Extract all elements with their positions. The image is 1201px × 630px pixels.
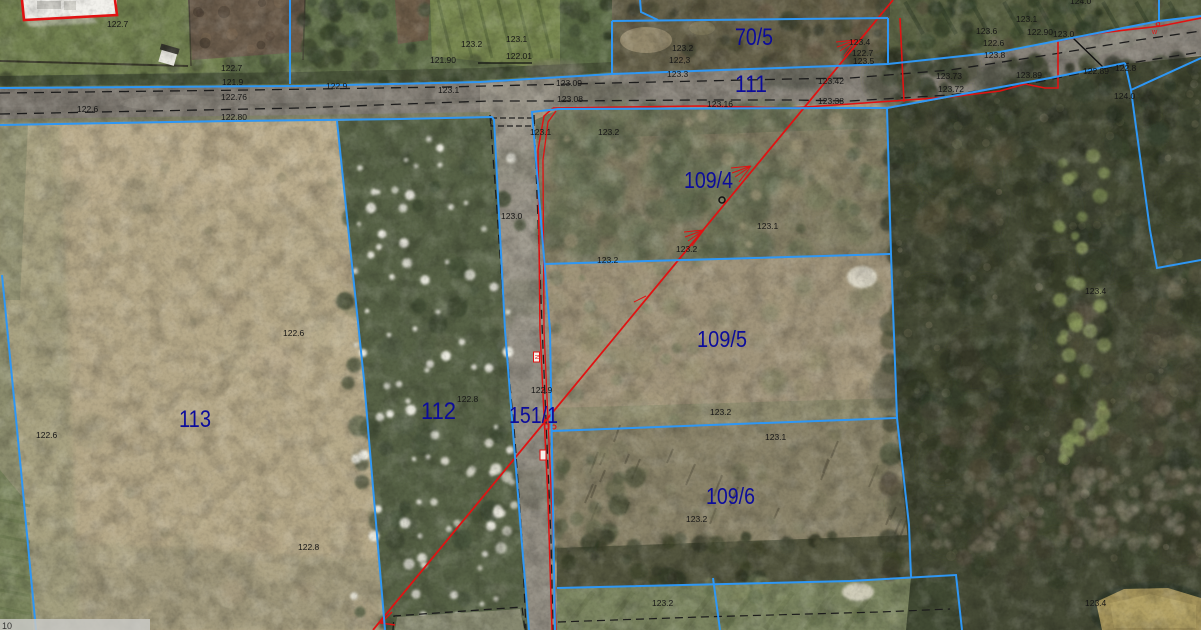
svg-text:123.1: 123.1 xyxy=(757,221,779,231)
svg-text:10: 10 xyxy=(2,621,12,630)
svg-text:123.2: 123.2 xyxy=(461,39,483,49)
svg-text:123.1: 123.1 xyxy=(530,127,552,137)
svg-text:123.4: 123.4 xyxy=(1085,598,1107,608)
svg-text:123.09: 123.09 xyxy=(556,78,582,88)
svg-text:122.6: 122.6 xyxy=(983,38,1005,48)
svg-text:122.9: 122.9 xyxy=(326,81,348,91)
svg-text:123.2: 123.2 xyxy=(598,127,620,137)
svg-text:121.90: 121.90 xyxy=(430,55,456,65)
svg-text:124.0: 124.0 xyxy=(1070,0,1092,6)
svg-text:123.2: 123.2 xyxy=(710,407,732,417)
svg-text:123.6: 123.6 xyxy=(976,26,998,36)
svg-text:123.2: 123.2 xyxy=(686,514,708,524)
svg-text:123.08: 123.08 xyxy=(557,94,583,104)
svg-text:122.6: 122.6 xyxy=(283,328,305,338)
svg-text:109/4: 109/4 xyxy=(684,167,733,193)
svg-text:123.1: 123.1 xyxy=(765,432,787,442)
svg-text:123.8: 123.8 xyxy=(984,50,1006,60)
svg-text:123.0: 123.0 xyxy=(1053,29,1075,39)
svg-text:122.8: 122.8 xyxy=(1115,63,1137,73)
svg-text:123.5: 123.5 xyxy=(853,56,875,66)
svg-text:123.1: 123.1 xyxy=(506,34,528,44)
svg-text:123.4: 123.4 xyxy=(849,37,871,47)
svg-text:123.73: 123.73 xyxy=(936,71,962,81)
svg-text:109/6: 109/6 xyxy=(706,483,755,509)
svg-text:122.6: 122.6 xyxy=(36,430,58,440)
svg-text:122.7: 122.7 xyxy=(221,63,243,73)
svg-text:123.4: 123.4 xyxy=(1085,286,1107,296)
svg-text:122,3: 122,3 xyxy=(669,55,691,65)
svg-text:113: 113 xyxy=(179,406,211,433)
svg-text:122.90: 122.90 xyxy=(1027,27,1053,37)
svg-text:w: w xyxy=(1151,29,1158,36)
svg-text:122.7: 122.7 xyxy=(107,19,129,29)
svg-text:122.8: 122.8 xyxy=(457,394,479,404)
svg-text:123.2: 123.2 xyxy=(652,598,674,608)
svg-text:111: 111 xyxy=(735,71,767,98)
svg-text:123.0: 123.0 xyxy=(501,211,523,221)
svg-text:70/5: 70/5 xyxy=(735,24,773,51)
svg-text:123.1: 123.1 xyxy=(1016,14,1038,24)
svg-text:122.6: 122.6 xyxy=(77,104,99,114)
svg-text:124.0: 124.0 xyxy=(1114,91,1136,101)
svg-text:123.89: 123.89 xyxy=(1016,70,1042,80)
svg-text:122.9: 122.9 xyxy=(531,385,553,395)
svg-text:109/5: 109/5 xyxy=(697,326,747,352)
svg-text:123.42: 123.42 xyxy=(818,76,844,86)
svg-text:N: N xyxy=(536,355,542,359)
svg-text:123.2: 123.2 xyxy=(676,244,698,254)
svg-text:123.16: 123.16 xyxy=(707,99,733,109)
svg-text:151/1: 151/1 xyxy=(509,402,558,428)
svg-text:122.01: 122.01 xyxy=(506,51,532,61)
svg-text:112: 112 xyxy=(421,398,456,425)
svg-text:122.89: 122.89 xyxy=(1083,66,1109,76)
svg-text:122.76: 122.76 xyxy=(221,92,247,102)
svg-text:123.38: 123.38 xyxy=(818,96,844,106)
svg-text:122.8: 122.8 xyxy=(298,542,320,552)
svg-text:123.72: 123.72 xyxy=(938,84,964,94)
svg-text:121.9: 121.9 xyxy=(222,77,244,87)
svg-text:122.80: 122.80 xyxy=(221,112,247,122)
svg-text:123.2: 123.2 xyxy=(597,255,619,265)
svg-text:123.1: 123.1 xyxy=(438,85,460,95)
svg-text:123.3: 123.3 xyxy=(667,69,689,79)
svg-text:123.2: 123.2 xyxy=(672,43,694,53)
